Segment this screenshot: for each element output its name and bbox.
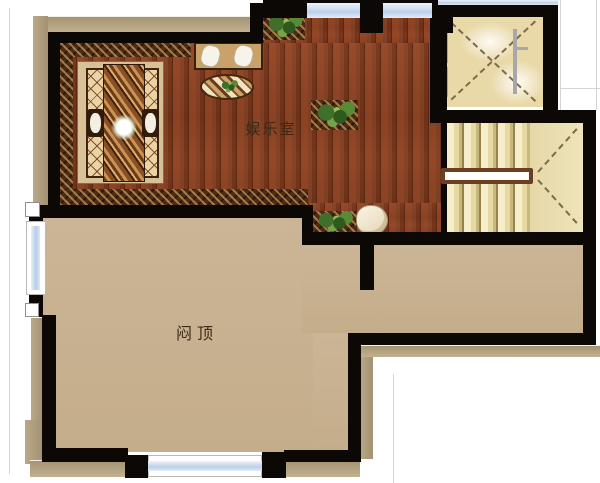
- wall-elevator-top: [430, 5, 558, 17]
- window-left-glass: [31, 226, 40, 290]
- wall-attic-left-lower: [42, 315, 56, 452]
- room-label-attic: 闷顶: [170, 326, 224, 342]
- elevator-door-line-right: [513, 29, 517, 94]
- stair-handrail-inner: [445, 172, 529, 180]
- wall-top-left: [48, 32, 252, 43]
- guide-line-right-h: [560, 88, 600, 89]
- guide-line-right-1: [560, 0, 561, 110]
- elevator-door-tick: [517, 47, 528, 50]
- wall-attic-bottom-right: [348, 333, 596, 345]
- guide-line-bottom: [393, 374, 394, 483]
- oval-rug-plant: [219, 79, 239, 94]
- parquet-border-left: [60, 43, 73, 205]
- wall-room-divider: [29, 205, 313, 218]
- wall-attic-bottom-mid: [284, 450, 354, 462]
- window-bottom-glass: [148, 461, 262, 471]
- window-top-1: [307, 3, 360, 18]
- window-elevator-top: [438, 0, 558, 5]
- guide-line-left: [9, 8, 10, 474]
- wall-post-marker-b: [25, 303, 39, 317]
- floor-plan: 娱乐室 闷顶: [0, 0, 600, 483]
- room-label-entertainment: 娱乐室: [238, 122, 304, 137]
- wall-left-upper: [48, 32, 60, 206]
- chair-left-cushion: [90, 113, 101, 133]
- wall-elevator-right: [543, 5, 558, 110]
- shadow-top: [33, 16, 251, 32]
- potted-plant-2-mat: [311, 100, 358, 130]
- wall-stub: [360, 245, 374, 290]
- potted-plant-3-mat: [312, 211, 356, 233]
- wall-stair-bottom: [302, 232, 593, 245]
- stair-handrail: [441, 168, 533, 184]
- parquet-border-bottom: [60, 189, 308, 205]
- oval-rug-leaves: [219, 79, 239, 94]
- wall-post-marker-a: [25, 202, 40, 217]
- attic-floor-right: [302, 245, 583, 333]
- wall-elevator-left: [430, 5, 447, 123]
- potted-plant-3-leaves: [312, 211, 356, 233]
- shadow-left-upper: [33, 16, 48, 206]
- stair-landing: [530, 123, 583, 232]
- wall-top-pillar-1: [360, 0, 383, 33]
- shadow-left-wedge: [25, 420, 43, 464]
- wall-below-elevator: [430, 110, 596, 123]
- parquet-border-top: [73, 43, 191, 57]
- wall-window-post-1: [125, 455, 148, 478]
- potted-plant-2-leaves: [311, 100, 358, 130]
- wall-top-step-corner: [250, 3, 263, 43]
- window-top-2: [383, 3, 432, 18]
- chair-left: [87, 109, 104, 137]
- table-flower-centerpiece: [110, 113, 138, 143]
- shadow-right-mid: [360, 345, 373, 459]
- chair-right: [142, 109, 159, 137]
- stone-stool: [356, 205, 388, 235]
- wall-attic-right-lower: [348, 333, 361, 462]
- wall-stair-right: [583, 110, 596, 345]
- chair-right-cushion: [145, 113, 156, 133]
- shadow-bottom-right: [357, 345, 600, 357]
- wall-attic-bottom-left: [42, 448, 128, 462]
- wall-window-post-2: [262, 452, 286, 478]
- guide-line-right-2: [596, 0, 597, 110]
